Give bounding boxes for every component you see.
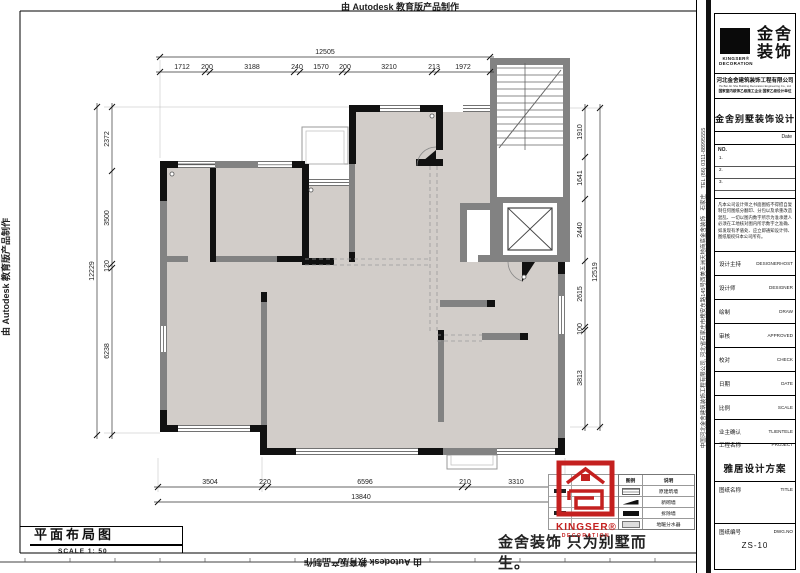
svg-text:1712: 1712: [174, 64, 190, 71]
drawing-title-box-divider: [182, 526, 183, 553]
row-draw: 绘制DRAW: [715, 300, 795, 324]
row-scale: 比例SCALE: [715, 396, 795, 420]
dim-top-total: 12505: [315, 49, 335, 56]
staircase: [497, 63, 563, 150]
revision-no-label: NO.: [715, 147, 795, 153]
legend-header-desc: 说明: [643, 477, 694, 484]
legend-symbol-new-wall: [623, 500, 639, 505]
svg-text:3210: 3210: [381, 64, 397, 71]
project-name: 雅居设计方案: [715, 461, 795, 475]
row-date: 日期DATE: [715, 372, 795, 396]
dimension-text-top: 12505 1712 200 3188 240 1570 200 3210 21…: [174, 49, 471, 71]
svg-text:120: 120: [104, 260, 111, 272]
svg-text:3504: 3504: [202, 479, 218, 486]
kingser-logo-square: [720, 28, 750, 54]
dim-bottom-total: 13840: [351, 494, 371, 501]
project-label-row: 工程名称 PROJECT: [715, 438, 795, 450]
svg-text:6238: 6238: [104, 343, 111, 359]
legend-label: 新砌墙: [643, 499, 694, 506]
legend-label: 地暖分水器: [643, 521, 694, 528]
legend-symbol-manifold: [622, 521, 640, 528]
title-block-bar: [706, 0, 711, 573]
signature-rows: 设计主持DESIGNERHOST 设计师DESIGNER 绘制DRAW 审核AP…: [715, 252, 795, 444]
drawing-scale: SCALE 1: 50: [30, 548, 182, 555]
svg-text:200: 200: [339, 64, 351, 71]
legend-label: 原建筑墙: [643, 488, 694, 495]
dimension-text-right: 12519 1910 1641 2440 2615 100 3813: [577, 124, 599, 386]
svg-text:213: 213: [428, 64, 440, 71]
drawing-title-box: 平面布局图 SCALE 1: 50: [30, 524, 182, 555]
svg-text:100: 100: [577, 323, 584, 335]
dim-right-total: 12519: [592, 262, 599, 282]
svg-text:1570: 1570: [313, 64, 329, 71]
svg-text:3188: 3188: [244, 64, 260, 71]
svg-text:2372: 2372: [104, 131, 111, 147]
svg-text:3500: 3500: [104, 210, 111, 226]
svg-text:2615: 2615: [577, 286, 584, 302]
legend-symbol-original-wall: [622, 488, 640, 495]
kingser-stamp-text: KINGSER®: [556, 523, 616, 533]
drawing-title-underline: [30, 544, 182, 546]
dimension-text-bottom: 13840 3504 220 6596 210 3310: [202, 479, 524, 501]
elevator-shaft: [500, 200, 560, 258]
legend-table: 图例 说明 原建筑墙 新砌墙 拆除墙 地暖分水器: [618, 474, 695, 530]
row-designer: 设计师DESIGNER: [715, 276, 795, 300]
title-block-content: KINGSER® DECORATION 金舍 装饰 河北金舍建筑装饰工程有限公司…: [714, 13, 796, 570]
revision-row: 3.: [715, 179, 795, 191]
svg-text:1910: 1910: [577, 124, 584, 140]
brand-en2: DECORATION: [716, 61, 756, 66]
company-name-en: He Bei Jin She Building Decoration Engin…: [719, 84, 791, 88]
brand-cn-line1: 金舍: [757, 26, 793, 44]
dwg-number: ZS-10: [715, 541, 795, 550]
row-approved: 审核APPROVED: [715, 324, 795, 348]
kingser-stamp-logo: [556, 460, 616, 518]
svg-text:1972: 1972: [455, 64, 471, 71]
revision-row: 1.: [715, 155, 795, 167]
revision-row: 2.: [715, 167, 795, 179]
dimension-text-left: 12229 2372 3500 120 6238: [89, 131, 111, 359]
kingser-stamp-subtext: DECORATION: [556, 533, 616, 539]
svg-text:3310: 3310: [508, 479, 524, 486]
kingser-logo-wordmark: KINGSER® DECORATION: [716, 56, 756, 67]
row-check: 校对CHECK: [715, 348, 795, 372]
dim-left-total: 12229: [89, 261, 96, 281]
drawing-sheet: 由 Autodesk 教育版产品制作 由 Autodesk 教育版产品制作 由 …: [0, 0, 800, 573]
sheet-title-label-row: 图纸名称 TITLE: [715, 483, 795, 495]
drawing-title: 平面布局图: [30, 524, 182, 543]
legend-header-symbol: 图例: [619, 475, 643, 485]
date-label: Date: [715, 134, 795, 140]
svg-text:1641: 1641: [577, 170, 584, 186]
svg-text:2440: 2440: [577, 222, 584, 238]
row-design-host: 设计主持DESIGNERHOST: [715, 252, 795, 276]
disclaimer-text: 凡本公司设计师之书面图纸不得擅自复制任何图纸分翻印、分包以及承重改造混乱、一切以…: [715, 200, 795, 243]
brand-cn: 金舍 装饰: [757, 26, 793, 61]
brand-cn-line2: 装饰: [757, 44, 793, 62]
svg-text:6596: 6596: [357, 479, 373, 486]
legend-symbol-demolish-wall: [623, 511, 639, 516]
company-certification: 国家室内装饰乙级施工企业 国家乙级设计单位: [715, 89, 795, 94]
legend-label: 拆除墙: [643, 510, 694, 517]
svg-text:3813: 3813: [577, 370, 584, 386]
kingser-stamp: KINGSER® DECORATION: [556, 460, 616, 539]
program-title: 金舍别墅装饰设计: [715, 112, 795, 125]
svg-text:210: 210: [459, 479, 471, 486]
company-name: 河北金舍建筑装饰工程有限公司: [715, 76, 795, 84]
svg-text:240: 240: [291, 64, 303, 71]
svg-text:220: 220: [259, 479, 271, 486]
dwg-no-label-row: 图纸编号 DWG.NO: [715, 525, 795, 537]
svg-text:200: 200: [201, 64, 213, 71]
title-block: 中国河北金舍建筑装饰工程有限公司, 河北省石家庄市槐安东路145号西美五洲天地商…: [696, 0, 800, 573]
